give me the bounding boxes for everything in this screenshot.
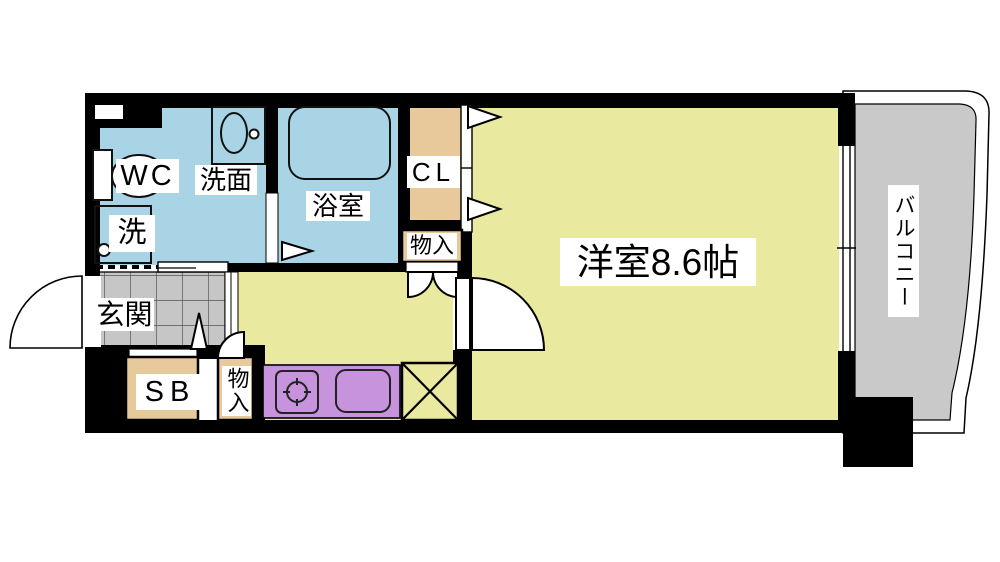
main-room-door-leaf [456,278,470,350]
balcony-label: バルコニー [888,185,919,317]
balcony-pillar [843,397,913,467]
storage-upper-door-strip [406,262,458,272]
floor-plan: WC 洗 洗面 浴室 CL 物入 洋室8.6帖 玄関 SB 物入 バルコニー [0,0,1000,562]
floor-plan-drawing [0,0,1000,562]
wc-label: WC [116,159,179,193]
wall-bottom [85,420,847,433]
wall-right-top [838,93,855,146]
vanity-faucet-icon [250,130,259,139]
storage-lower-label: 物入 [222,366,251,416]
balcony-window [837,146,856,351]
washroom-sliding-door [158,262,228,272]
bathroom-floor [274,105,400,265]
wall-vent-notch [95,105,123,119]
washstand-label: 洗面 [195,165,257,195]
bathroom-door-opening [266,193,278,263]
toilet-tank-icon [93,150,112,200]
storage-upper-label: 物入 [407,233,457,259]
entrance-label: 玄関 [95,298,154,331]
main-room-label: 洋室8.6帖 [560,238,756,286]
shoebox-label: SB [136,374,204,410]
laundry-label: 洗 [109,215,155,252]
refrigerator-space-icon [402,363,458,420]
entrance-door-swing [10,276,82,348]
closet-label: CL [407,156,460,188]
wall-washroom-bottom [226,263,412,272]
bathroom-label: 浴室 [306,191,370,221]
